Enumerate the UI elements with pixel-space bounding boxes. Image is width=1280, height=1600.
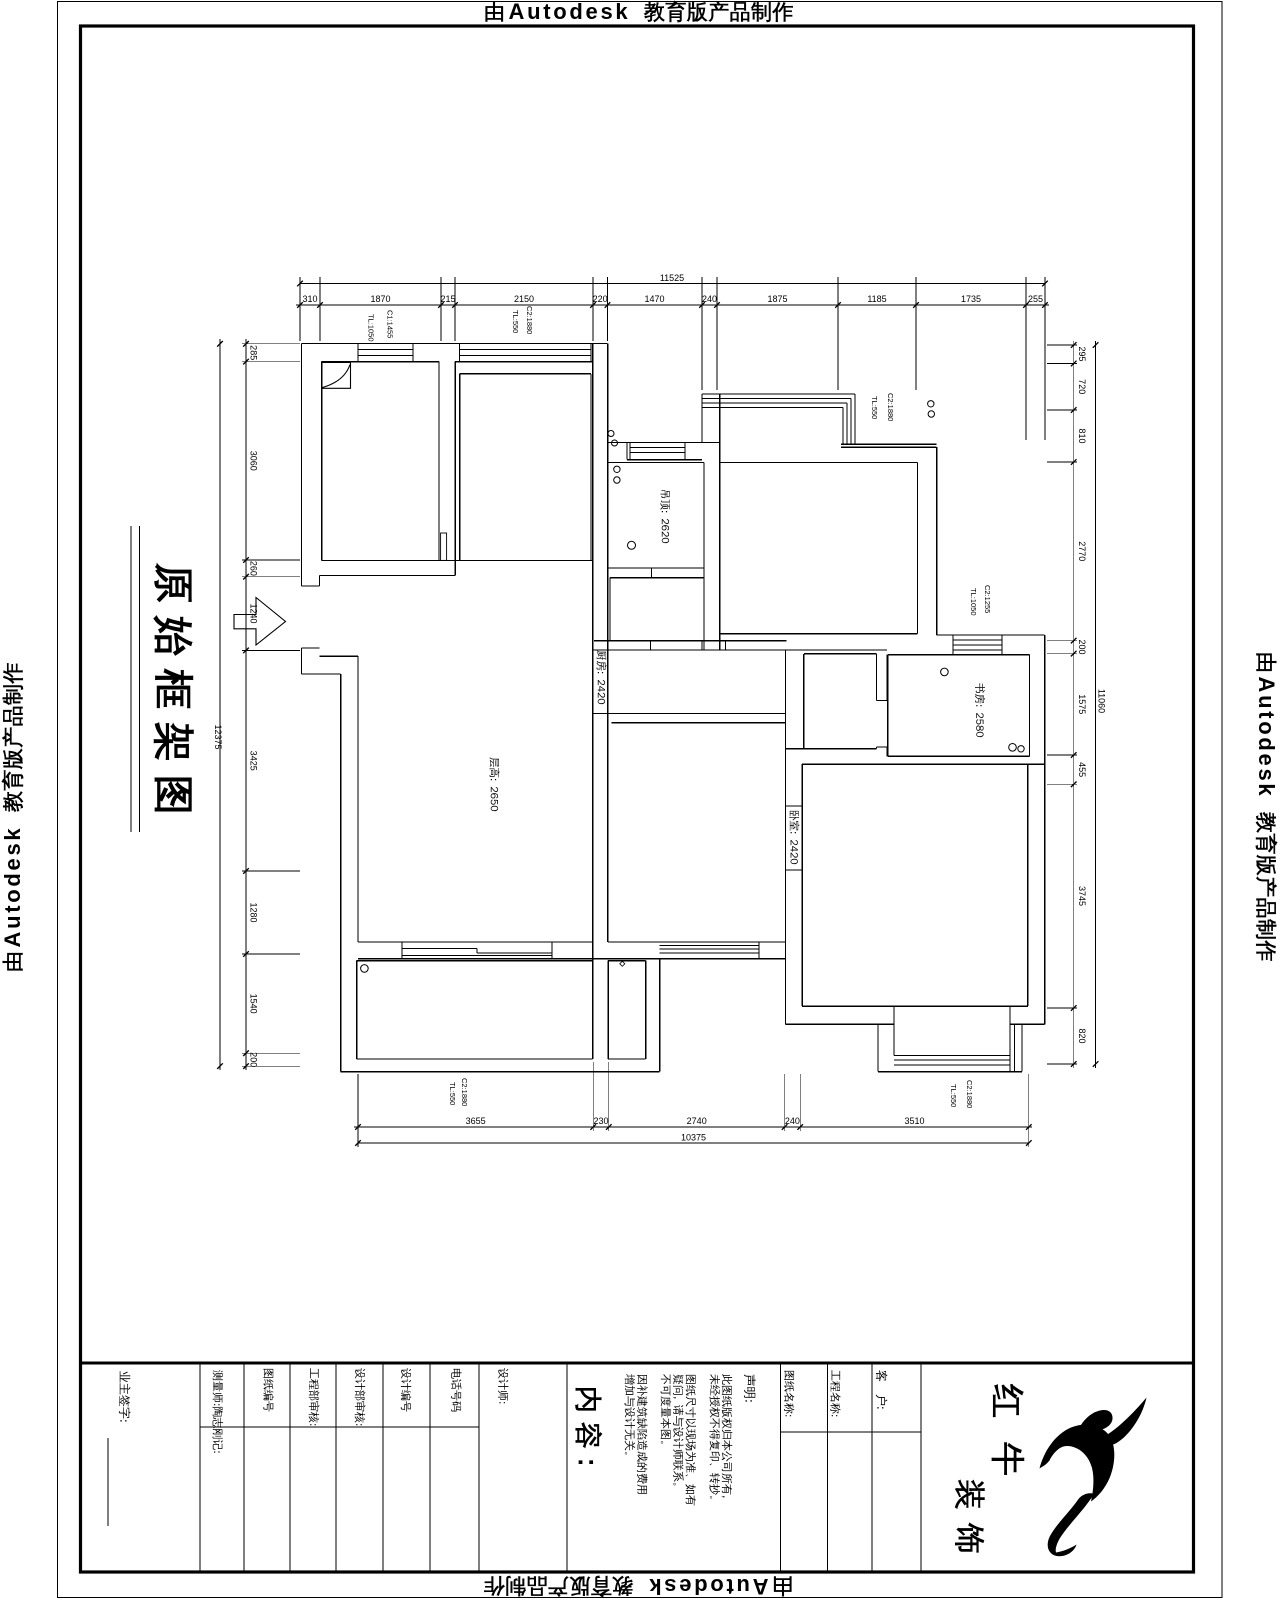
svg-text:820: 820 bbox=[1077, 1028, 1087, 1043]
svg-text:C2:1880: C2:1880 bbox=[886, 393, 895, 421]
svg-text:3425: 3425 bbox=[249, 751, 259, 771]
svg-text:11525: 11525 bbox=[660, 273, 684, 283]
svg-text:240: 240 bbox=[785, 1116, 800, 1126]
svg-text:295: 295 bbox=[1077, 346, 1087, 361]
svg-text:1540: 1540 bbox=[249, 994, 259, 1014]
svg-text:285: 285 bbox=[249, 345, 259, 360]
svg-text:C2:1255: C2:1255 bbox=[983, 585, 992, 613]
svg-text:455: 455 bbox=[1077, 762, 1087, 777]
svg-text:1575: 1575 bbox=[1077, 694, 1087, 714]
svg-text:2770: 2770 bbox=[1077, 541, 1087, 561]
svg-text:TL:550: TL:550 bbox=[949, 1084, 958, 1107]
svg-text:200: 200 bbox=[1077, 639, 1087, 654]
svg-text:230: 230 bbox=[593, 1116, 608, 1126]
svg-text:TL:550: TL:550 bbox=[511, 310, 520, 333]
svg-text:C1:1455: C1:1455 bbox=[385, 310, 394, 338]
svg-text:C2:1880: C2:1880 bbox=[965, 1080, 974, 1108]
svg-text:220: 220 bbox=[593, 294, 608, 304]
svg-text:2740: 2740 bbox=[687, 1116, 707, 1126]
svg-text:1185: 1185 bbox=[867, 294, 886, 304]
svg-text:3655: 3655 bbox=[466, 1116, 486, 1126]
svg-text:1870: 1870 bbox=[370, 294, 390, 304]
svg-text:3745: 3745 bbox=[1077, 886, 1087, 906]
svg-text:1470: 1470 bbox=[644, 294, 664, 304]
svg-text:810: 810 bbox=[1077, 428, 1087, 443]
svg-text:Autodesk: Autodesk bbox=[0, 826, 25, 948]
svg-text:240: 240 bbox=[702, 294, 717, 304]
svg-text:TL:550: TL:550 bbox=[870, 396, 879, 419]
svg-text:TL:1050: TL:1050 bbox=[366, 314, 375, 342]
svg-text:720: 720 bbox=[1077, 379, 1087, 394]
svg-text:260: 260 bbox=[249, 561, 259, 576]
svg-text:215: 215 bbox=[440, 294, 455, 304]
svg-text:3510: 3510 bbox=[904, 1116, 924, 1126]
svg-text:200: 200 bbox=[249, 1052, 259, 1067]
svg-text:1875: 1875 bbox=[767, 294, 787, 304]
svg-text:TL:550: TL:550 bbox=[448, 1082, 457, 1105]
svg-text:255: 255 bbox=[1028, 294, 1043, 304]
svg-text:11060: 11060 bbox=[1096, 689, 1106, 713]
svg-text:3060: 3060 bbox=[249, 451, 259, 471]
svg-text:12375: 12375 bbox=[213, 724, 223, 749]
svg-text:C2:1880: C2:1880 bbox=[525, 306, 534, 334]
svg-text:Autodesk: Autodesk bbox=[509, 0, 631, 24]
svg-text:C2:1880: C2:1880 bbox=[460, 1078, 469, 1106]
svg-text:2150: 2150 bbox=[514, 294, 534, 304]
svg-text:10375: 10375 bbox=[681, 1133, 706, 1143]
svg-text:TL:1050: TL:1050 bbox=[969, 588, 978, 616]
svg-text:1735: 1735 bbox=[961, 294, 981, 304]
svg-text:1280: 1280 bbox=[249, 902, 259, 922]
svg-text:310: 310 bbox=[302, 294, 317, 304]
svg-text:Autodesk: Autodesk bbox=[1254, 677, 1279, 799]
svg-text:Autodesk: Autodesk bbox=[647, 1574, 769, 1599]
svg-text:1240: 1240 bbox=[249, 603, 259, 623]
